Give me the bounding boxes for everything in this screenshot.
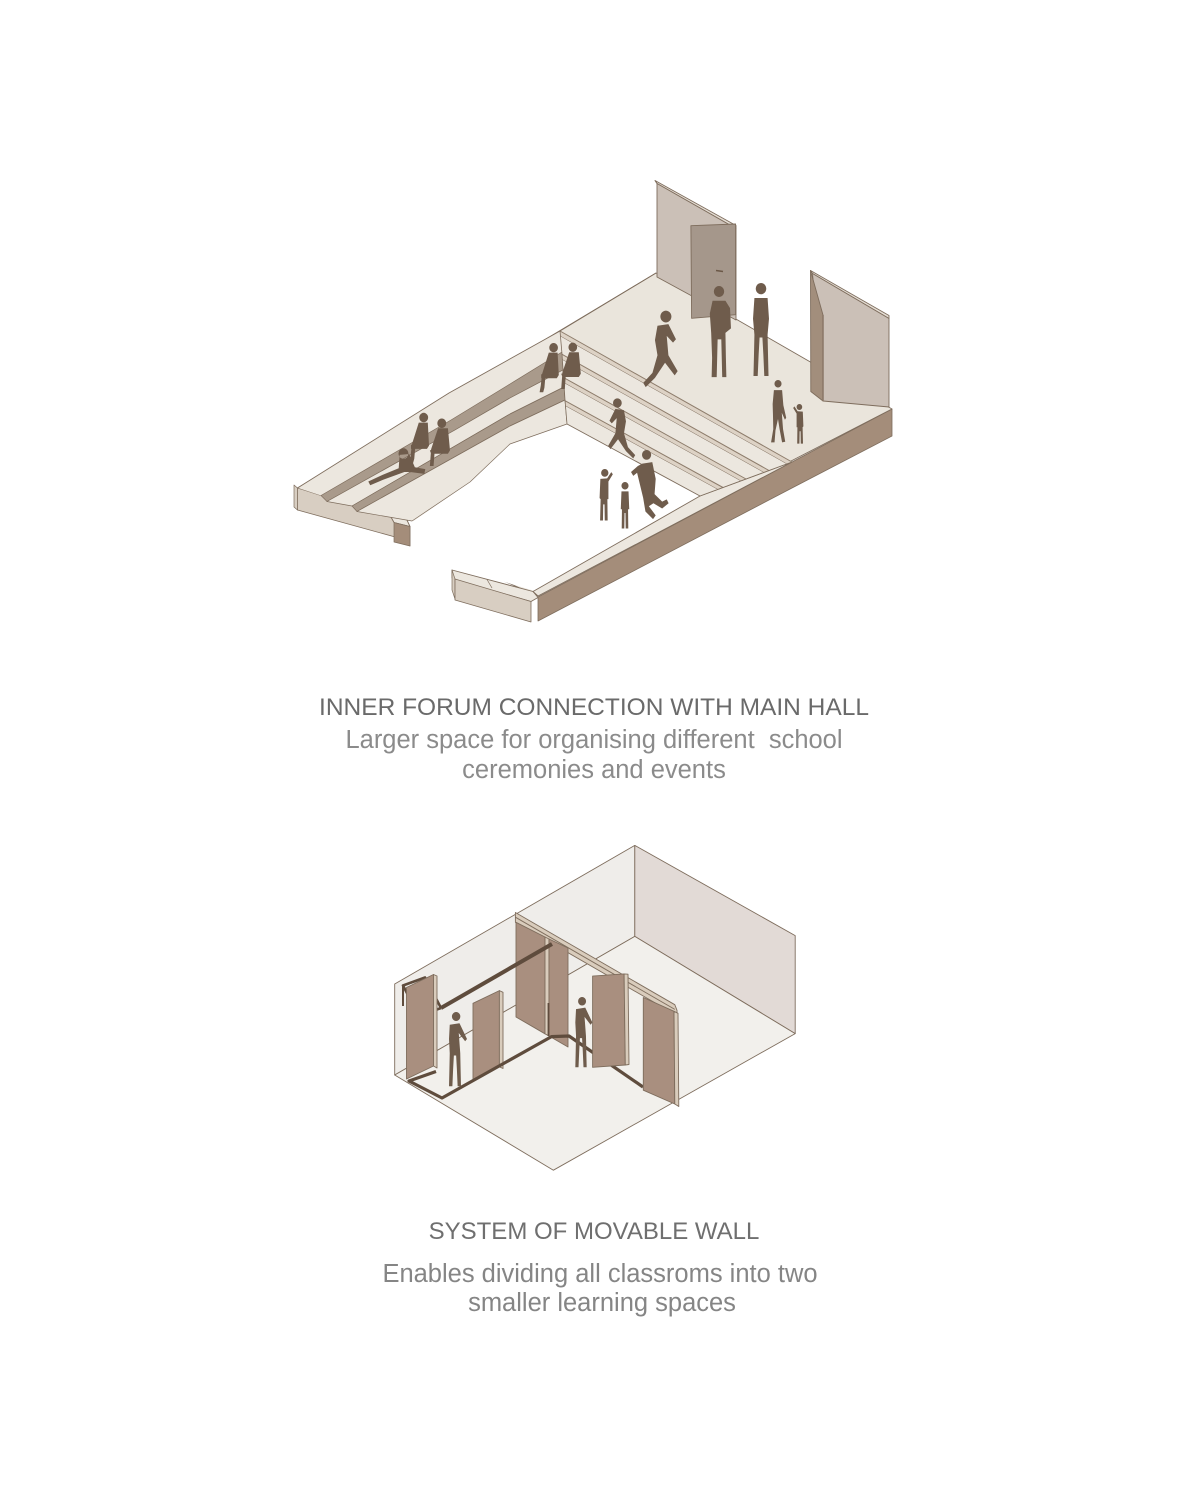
svg-text:Larger space for organising di: Larger space for organising different sc… <box>345 726 842 754</box>
svg-text:SYSTEM OF MOVABLE WALL: SYSTEM OF MOVABLE WALL <box>429 1218 760 1245</box>
svg-text:smaller learning spaces: smaller learning spaces <box>468 1289 736 1317</box>
svg-text:Enables dividing all classroms: Enables dividing all classroms into two <box>382 1260 817 1288</box>
svg-text:ceremonies and events: ceremonies and events <box>462 756 726 784</box>
svg-text:INNER FORUM CONNECTION WITH MA: INNER FORUM CONNECTION WITH MAIN HALL <box>319 694 869 721</box>
